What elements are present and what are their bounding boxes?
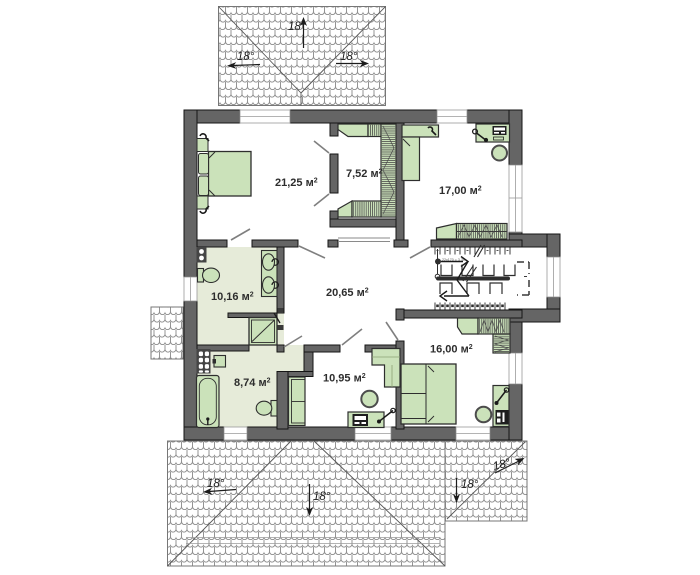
svg-text:18°: 18° bbox=[340, 51, 358, 63]
svg-text:10,95 м2: 10,95 м2 bbox=[323, 373, 366, 385]
svg-text:18°: 18° bbox=[207, 478, 225, 490]
svg-text:10,16 м2: 10,16 м2 bbox=[211, 291, 254, 303]
svg-text:18°: 18° bbox=[313, 491, 331, 503]
svg-text:18°: 18° bbox=[461, 479, 479, 491]
svg-text:20,65 м2: 20,65 м2 bbox=[326, 287, 369, 299]
svg-text:7,52 м2: 7,52 м2 bbox=[346, 168, 383, 180]
svg-text:16,00 м2: 16,00 м2 bbox=[430, 344, 473, 356]
svg-text:8,74 м2: 8,74 м2 bbox=[234, 377, 271, 389]
svg-text:18°: 18° bbox=[237, 51, 255, 63]
svg-text:17,00 м2: 17,00 м2 bbox=[439, 185, 482, 197]
svg-text:21,25 м2: 21,25 м2 bbox=[275, 177, 318, 189]
